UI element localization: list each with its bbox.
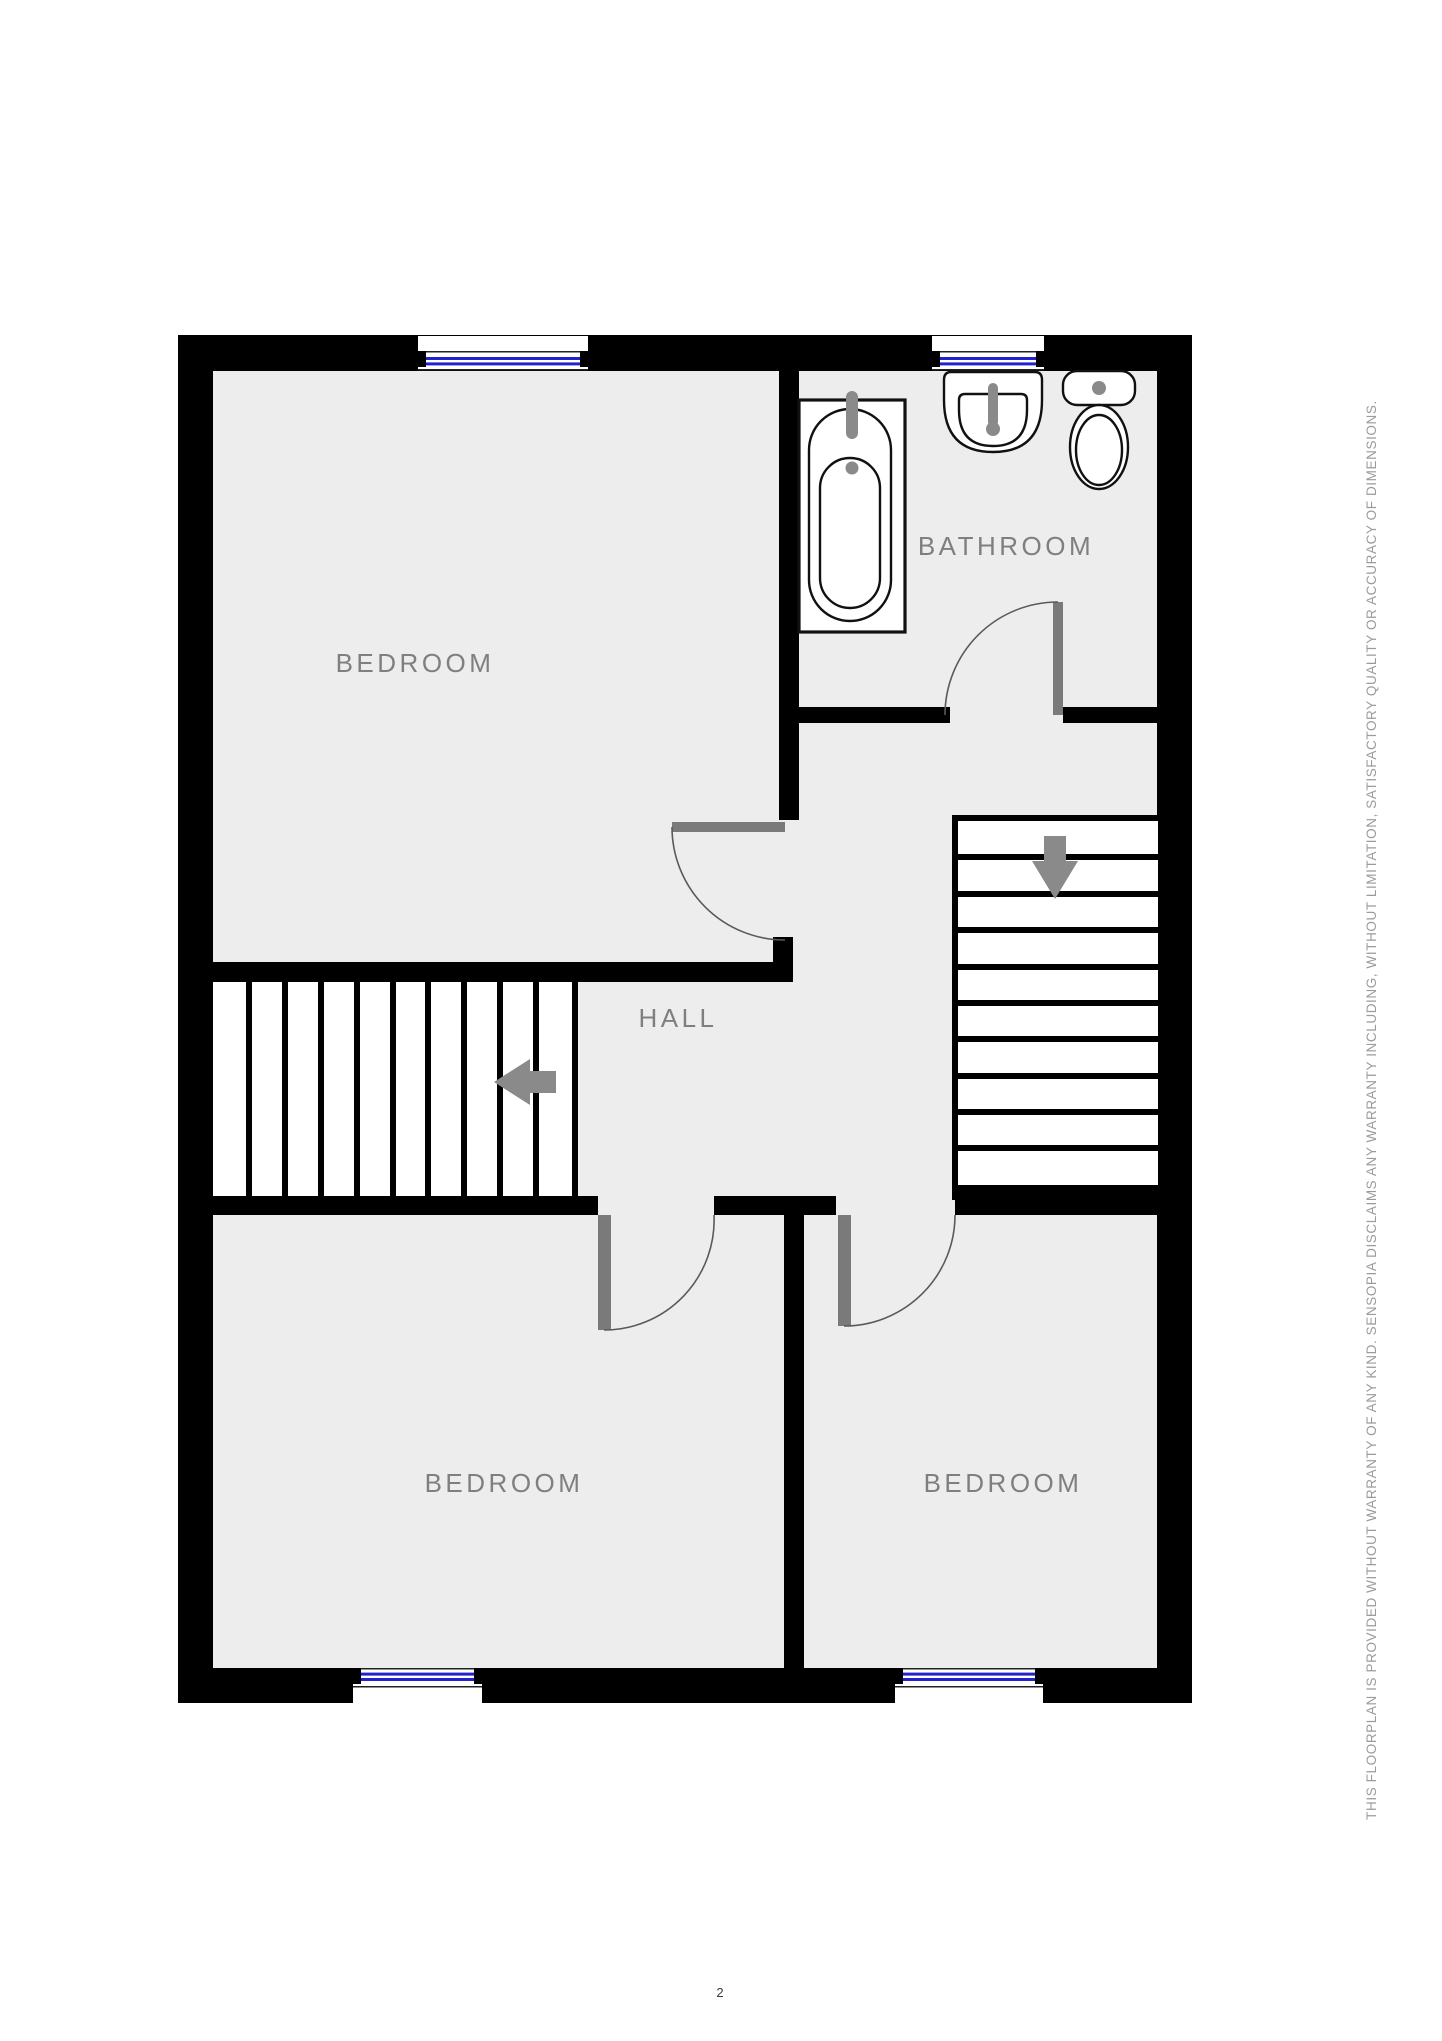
room-label-bathroom: BATHROOM [918, 531, 1094, 561]
room-label-hall: HALL [638, 1003, 717, 1033]
floorplan-page: BEDROOM BATHROOM HALL BEDROOM BEDROOM TH… [0, 0, 1442, 2041]
room-label-bedroom-top: BEDROOM [336, 648, 495, 678]
page-number: 2 [716, 1985, 723, 2000]
window-bedroom-top [418, 336, 588, 371]
floorplan-svg: BEDROOM BATHROOM HALL BEDROOM BEDROOM TH… [0, 0, 1442, 2041]
window-bedroom-bottom-left [353, 1668, 482, 1703]
sink-icon [944, 372, 1042, 452]
bathtub-icon [799, 391, 905, 632]
window-bathroom [932, 336, 1044, 371]
room-label-bedroom-bottom-right: BEDROOM [924, 1468, 1083, 1498]
staircase-right [952, 815, 1158, 1200]
staircase-left [213, 982, 578, 1196]
window-bedroom-bottom-right [895, 1668, 1043, 1703]
room-label-bedroom-bottom-left: BEDROOM [425, 1468, 584, 1498]
disclaimer-text: THIS FLOORPLAN IS PROVIDED WITHOUT WARRA… [1364, 400, 1379, 1820]
